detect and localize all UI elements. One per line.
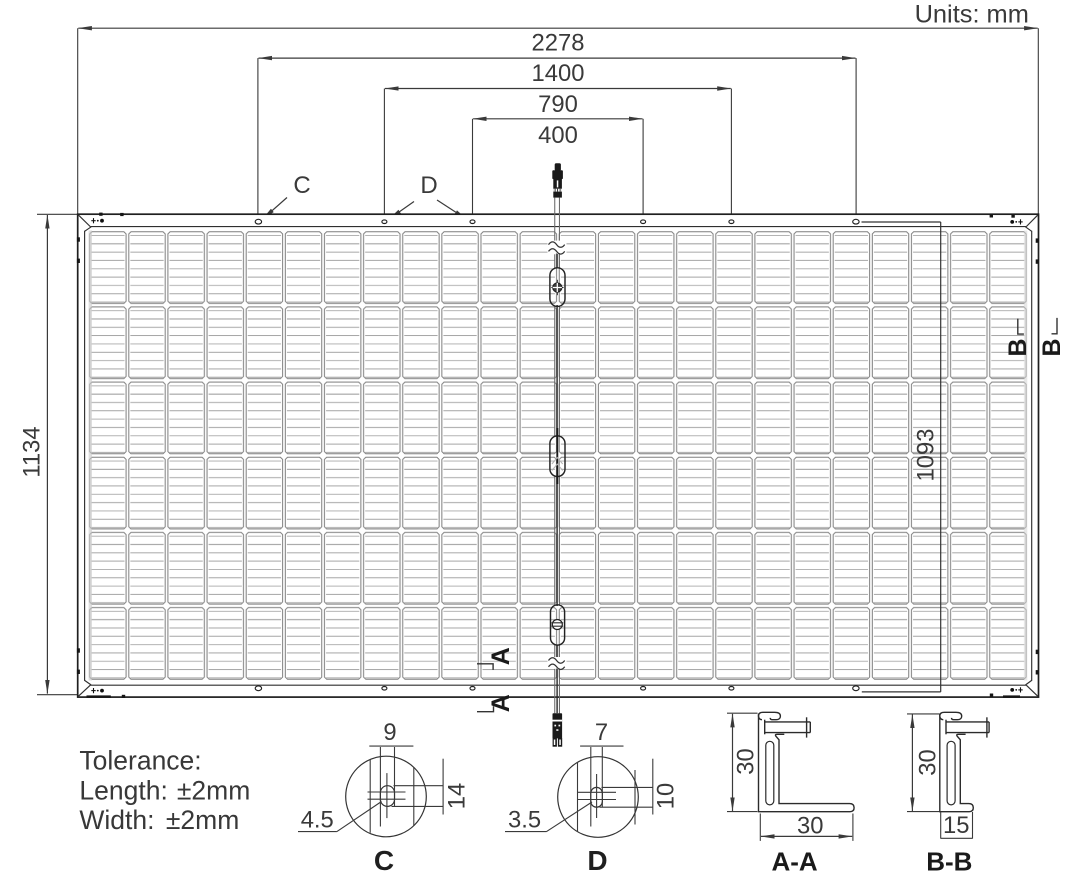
svg-text:Length:: Length: [79,775,167,805]
svg-text:30: 30 [733,748,760,774]
svg-text:400: 400 [538,122,578,149]
svg-text:14: 14 [443,783,470,809]
svg-text:1400: 1400 [532,60,585,87]
svg-text:D: D [587,845,607,876]
svg-text:1093: 1093 [913,429,940,482]
svg-text:D: D [420,172,437,199]
svg-text:1134: 1134 [18,426,45,477]
svg-text:30: 30 [797,813,823,840]
svg-text:Units: mm: Units: mm [915,1,1029,29]
svg-text:C: C [293,172,310,199]
svg-text:4.5: 4.5 [301,806,334,833]
svg-text:2278: 2278 [532,29,585,56]
svg-text:C: C [374,845,394,876]
svg-text:A: A [487,647,515,665]
svg-text:A-A: A-A [771,847,817,877]
svg-text:B: B [1004,338,1032,356]
svg-text:±2mm: ±2mm [177,775,250,805]
svg-text:30: 30 [914,749,941,775]
svg-text:Tolerance:: Tolerance: [79,746,201,776]
svg-text:Width:: Width: [79,805,154,835]
svg-text:B-B: B-B [926,847,972,877]
svg-text:790: 790 [538,91,578,118]
svg-text:15: 15 [943,812,969,839]
svg-text:±2mm: ±2mm [166,805,239,835]
svg-text:7: 7 [595,719,608,746]
svg-text:B: B [1038,338,1066,356]
svg-text:9: 9 [383,719,396,746]
svg-text:10: 10 [652,783,679,809]
svg-text:A: A [487,694,515,712]
svg-text:3.5: 3.5 [508,806,541,833]
